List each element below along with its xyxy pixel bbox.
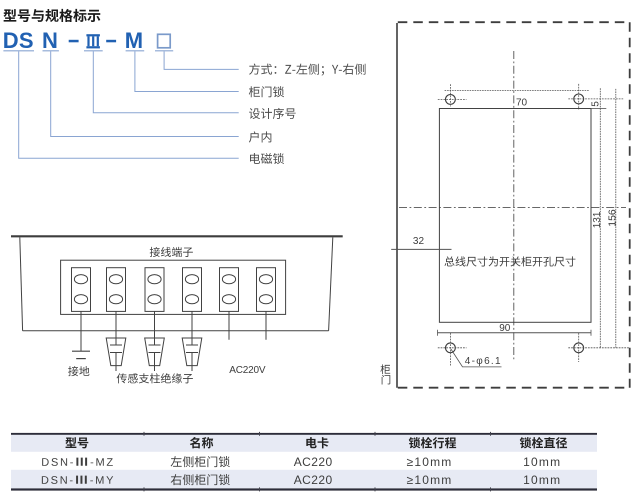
svg-text:10mm: 10mm: [523, 455, 561, 469]
svg-text:4-φ6.1: 4-φ6.1: [465, 356, 502, 367]
svg-text:131: 131: [592, 211, 603, 228]
svg-text:70: 70: [516, 97, 528, 108]
svg-text:≥10mm: ≥10mm: [407, 455, 453, 469]
svg-text:M: M: [125, 28, 143, 53]
svg-text:AC220: AC220: [294, 455, 333, 469]
svg-text:≥10mm: ≥10mm: [407, 473, 453, 487]
svg-text:32: 32: [413, 236, 425, 247]
svg-text:156: 156: [606, 209, 618, 227]
svg-text:N: N: [42, 28, 58, 53]
svg-text:AC220V: AC220V: [229, 365, 266, 376]
svg-text:DS: DS: [3, 28, 34, 53]
svg-text:90: 90: [499, 323, 511, 334]
svg-text:10mm: 10mm: [523, 473, 561, 487]
svg-text:AC220: AC220: [294, 473, 333, 487]
